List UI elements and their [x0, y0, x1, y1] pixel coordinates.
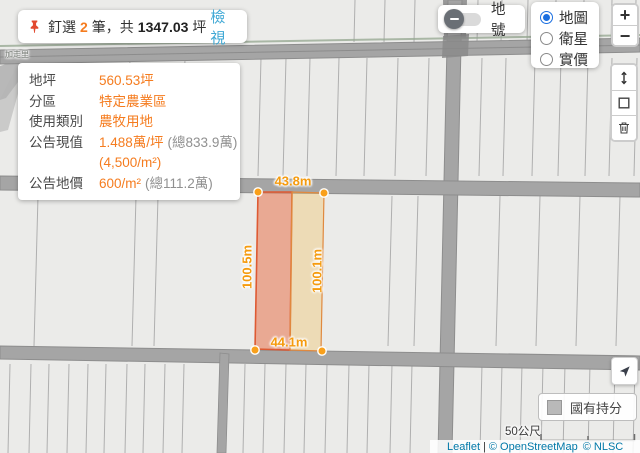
info-label: 公告現值: [29, 133, 99, 154]
zoom-control: + −: [611, 3, 639, 47]
measure-distance-button[interactable]: [612, 65, 636, 90]
measure-toolbar: [610, 63, 638, 142]
legend-state-owned: 國有持分: [538, 393, 637, 421]
radio-selected-icon[interactable]: [540, 11, 553, 24]
parcel-left[interactable]: [255, 192, 292, 350]
radio-icon[interactable]: [540, 32, 553, 45]
leaflet-link[interactable]: Leaflet: [447, 441, 480, 453]
info-row: 公告現值 1.488萬/坪 (總833.9萬): [29, 133, 240, 154]
info-row: 公告地價 600/m² (總111.2萬): [29, 174, 240, 195]
osm-link[interactable]: © OpenStreetMap: [489, 441, 578, 453]
measurement-left: 100.5m: [240, 245, 255, 289]
info-label: 分區: [29, 92, 99, 113]
info-note: (總111.2萬): [145, 174, 213, 195]
info-label: 使用類別: [29, 112, 99, 133]
measurement-right: 100.1m: [310, 249, 325, 293]
measurement-top: 43.8m: [275, 174, 312, 189]
view-link[interactable]: 檢視: [210, 6, 237, 48]
vertex-dot[interactable]: [251, 346, 259, 354]
measure-area-button[interactable]: [612, 90, 636, 115]
place-label: 加走里: [5, 49, 29, 60]
info-row: 分區 特定農業區: [29, 92, 240, 113]
radio-icon[interactable]: [540, 53, 553, 66]
info-value: 1.488萬/坪: [99, 133, 164, 154]
layer-option-price[interactable]: 實價: [540, 49, 590, 70]
info-value: (4,500/m²): [99, 153, 161, 174]
parcel-info-panel: 地坪 560.53坪 分區 特定農業區 使用類別 農牧用地 公告現值 1.488…: [18, 63, 240, 200]
base-layer-panel: 地圖 衛星 實價: [531, 2, 599, 68]
info-value: 特定農業區: [99, 92, 167, 113]
attribution-separator: |: [483, 441, 486, 453]
measure-area-icon: [617, 96, 631, 110]
pinned-unit: 坪: [192, 17, 206, 37]
info-note: (總833.9萬): [168, 133, 238, 154]
navigation-arrow-icon: [617, 364, 632, 379]
info-row: (4,500/m²): [29, 153, 240, 174]
info-value: 600/m²: [99, 174, 141, 195]
scale-label: 50公尺: [505, 423, 541, 439]
info-row: 使用類別 農牧用地: [29, 112, 240, 133]
toggle-knob-minus-icon[interactable]: [444, 9, 464, 29]
pinned-total-area: 1347.03: [138, 19, 189, 35]
info-label: [29, 153, 99, 174]
pinned-prefix: 釘選: [48, 17, 76, 37]
locate-button[interactable]: [611, 357, 638, 385]
toggle-track[interactable]: [447, 13, 481, 26]
layer-option-satellite[interactable]: 衛星: [540, 28, 590, 49]
zoom-in-button[interactable]: +: [613, 5, 637, 25]
measurement-bottom: 44.1m: [271, 335, 308, 350]
layer-option-label: 地圖: [559, 7, 588, 28]
measure-distance-icon: [617, 71, 631, 85]
vertex-dot[interactable]: [254, 188, 262, 196]
nlsc-link[interactable]: © NLSC: [583, 441, 624, 453]
info-value: 560.53坪: [99, 71, 154, 92]
layer-option-label: 實價: [559, 49, 588, 70]
gray-square-swatch: [547, 400, 562, 415]
ukraine-flag-icon: [433, 443, 444, 451]
info-row: 地坪 560.53坪: [29, 71, 240, 92]
clear-measure-button[interactable]: [612, 115, 636, 140]
info-label: 地坪: [29, 71, 99, 92]
pinned-summary-bar: 釘選 2 筆，共 1347.03 坪 檢視: [18, 10, 247, 43]
trash-icon: [617, 121, 631, 135]
map-app-window: 加走里 43.8m 44.1m 100.5m 100.1m 釘選 2 筆，共 1…: [0, 0, 640, 453]
vertex-dot[interactable]: [320, 189, 328, 197]
info-label: 公告地價: [29, 174, 99, 195]
vertex-dot[interactable]: [318, 347, 326, 355]
toggle-label: 地號: [491, 0, 516, 40]
attribution-bar: Leaflet | © OpenStreetMap © NLSC: [430, 440, 640, 453]
parcel-number-toggle[interactable]: 地號: [438, 5, 525, 33]
layer-option-label: 衛星: [559, 28, 588, 49]
pinned-count: 2: [80, 19, 88, 35]
pushpin-icon: [28, 20, 41, 34]
road-intersection-patch: [442, 34, 469, 58]
legend-label: 國有持分: [570, 398, 622, 417]
layer-option-map[interactable]: 地圖: [540, 7, 590, 28]
zoom-out-button[interactable]: −: [613, 25, 637, 45]
info-value: 農牧用地: [99, 112, 153, 133]
pinned-middle: 筆，共: [92, 17, 134, 37]
